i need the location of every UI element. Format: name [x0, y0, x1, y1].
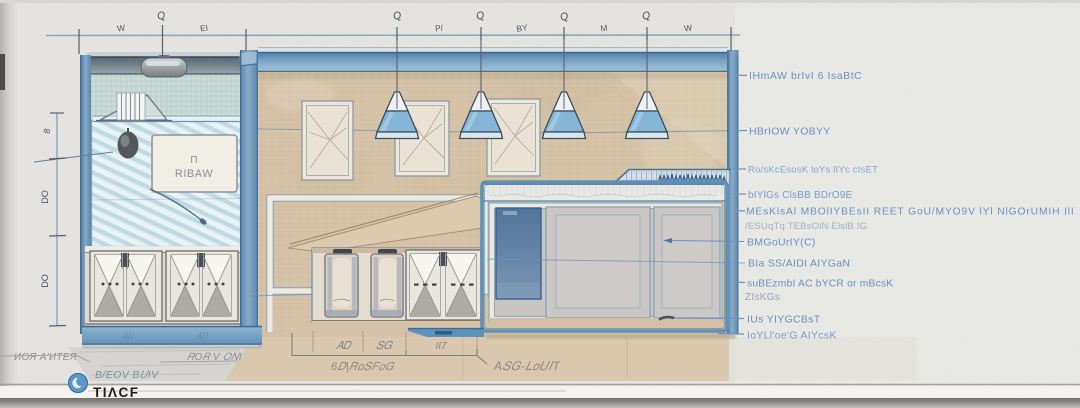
svg-text:DO: DO	[40, 274, 50, 288]
svg-text:II7: II7	[435, 341, 447, 352]
svg-text:/ESUqTq TEBsOlN ElslB IG: /ESUqTq TEBsOlN ElslB IG	[745, 221, 867, 232]
svg-text:DO: DO	[40, 190, 50, 204]
svg-text:IoYLl'oe'G AIYcsK: IoYLl'oe'G AIYcsK	[747, 330, 837, 342]
svg-text:BMGoUrIY(C): BMGoUrIY(C)	[747, 237, 816, 249]
svg-text:𝐴𝐷: 𝐴𝐷	[195, 331, 209, 341]
svg-text:suBEzmbI AC bYCR or mBcsK: suBEzmbI AC bYCR or mBcsK	[747, 279, 893, 290]
svg-text:ИOЯ A'ИTEЯ: ИOЯ A'ИTEЯ	[14, 352, 77, 363]
svg-text:RIBAW: RIBAW	[175, 168, 213, 180]
svg-text:HBrIOW YOBYY: HBrIOW YOBYY	[749, 126, 831, 138]
svg-text:Π: Π	[190, 155, 197, 166]
svg-text:6𝐷|𝑅𝑜𝑆𝐹𝑜𝐺: 6𝐷|𝑅𝑜𝑆𝐹𝑜𝐺	[331, 361, 395, 373]
svg-text:M: M	[600, 23, 608, 34]
svg-text:B/EOV B𝑈IV: B/EOV B𝑈IV	[95, 369, 159, 381]
svg-text:bIYlGs ClsBB BDrO9E: bIYlGs ClsBB BDrO9E	[748, 190, 853, 201]
svg-text:Ro/sKcEsosK loYs lIYc cIsET: Ro/sKcEsosK loYs lIYc cIsET	[748, 165, 878, 176]
svg-text:BIa SS/AIDI AIYGaN: BIa SS/AIDI AIYGaN	[748, 258, 850, 270]
svg-text:MEsKlsAl MBOlIYBEsII REET GoU/: MEsKlsAl MBOlIYBEsII REET GoU/MYO9V lYl …	[746, 207, 1075, 218]
svg-text:W: W	[683, 22, 692, 33]
svg-text:EI: EI	[199, 22, 208, 33]
svg-text:W: W	[116, 22, 125, 33]
svg-text:IUs YIYGCBsT: IUs YIYGCBsT	[747, 314, 821, 326]
svg-text:IHmAW brIvI 6 IsaBtC: IHmAW brIvI 6 IsaBtC	[749, 70, 862, 82]
svg-text:𝐴𝐷: 𝐴𝐷	[121, 331, 135, 341]
svg-text:BY: BY	[516, 22, 529, 34]
svg-text:𝐴𝐷: 𝐴𝐷	[335, 340, 352, 352]
svg-text:𝑆𝐺: 𝑆𝐺	[376, 340, 393, 352]
svg-text:TΙΛCF: TΙΛCF	[93, 385, 140, 400]
svg-text:ZIsKGs: ZIsKGs	[745, 292, 780, 303]
svg-text:A𝑆𝐺-𝐿𝑜𝑈𝐼T: A𝑆𝐺-𝐿𝑜𝑈𝐼T	[493, 359, 561, 373]
